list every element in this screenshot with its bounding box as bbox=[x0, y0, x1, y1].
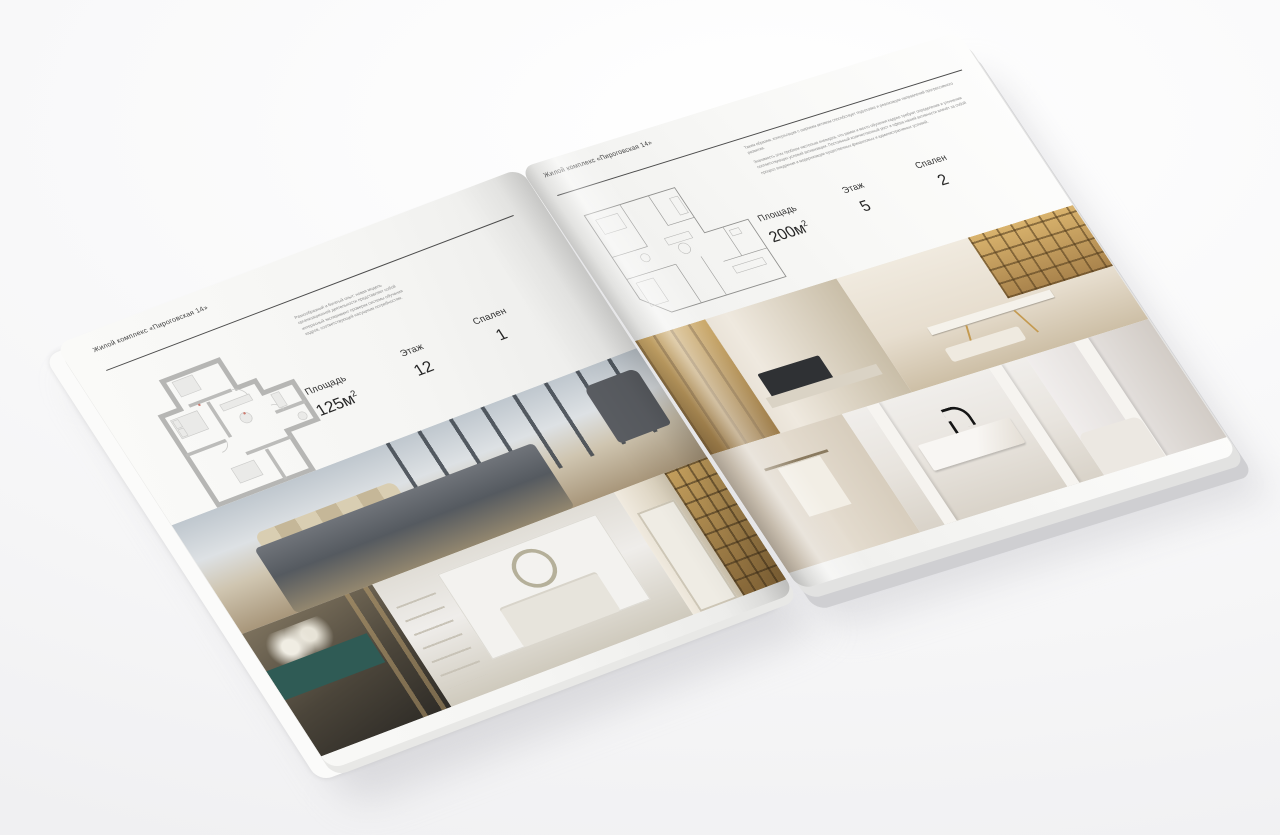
spec-area-left: Площадь 125м2 bbox=[283, 366, 384, 428]
black-faucet bbox=[940, 403, 976, 431]
glass-display-cabinets bbox=[968, 205, 1113, 298]
spec-bedrooms-right: Спален 2 bbox=[890, 146, 986, 201]
magazine-spread: Жилой комплекс «Пироговская 14» Таким об… bbox=[0, 0, 1280, 835]
description-left: Разнообразный и богатый опыт: новая моде… bbox=[293, 273, 419, 337]
page-header-left: Жилой комплекс «Пироговская 14» bbox=[92, 305, 210, 354]
bench bbox=[944, 326, 1027, 362]
spec-floor-right: Этаж 5 bbox=[813, 172, 909, 227]
